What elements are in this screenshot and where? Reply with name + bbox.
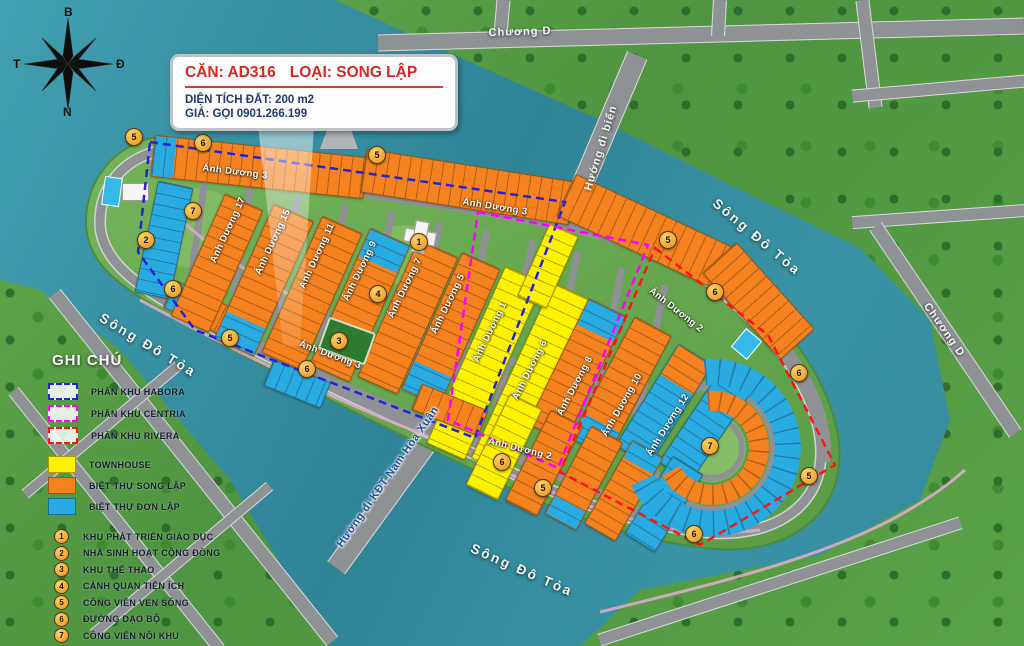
legend-amenity-7: 7 CÔNG VIÊN NỘI KHU	[30, 628, 280, 643]
legend-item-townhouse: TOWNHOUSE	[30, 456, 280, 473]
legend-amenity-2: 2 NHÀ SINH HOẠT CỘNG ĐỒNG	[30, 546, 280, 561]
amenity-marker: 1	[410, 233, 428, 251]
legend-amenity-6: 6 ĐƯỜNG DẠO BỘ	[30, 612, 280, 627]
legend-panel: GHI CHÚ PHÂN KHU HABORA PHÂN KHU CENTRIA…	[30, 352, 280, 645]
compass-rose: B N T Đ	[12, 4, 124, 116]
legend-label: KHU THỂ THAO	[83, 565, 155, 575]
compass-west-label: T	[13, 57, 21, 71]
habora-swatch	[48, 383, 78, 400]
popup-title: CĂN: AD316LOẠI: SONG LẬP	[185, 64, 443, 82]
amenity-number: 1	[54, 529, 69, 544]
amenity-marker: 6	[790, 364, 808, 382]
amenity-marker: 5	[125, 128, 143, 146]
legend-label: CÔNG VIÊN VEN SÔNG	[83, 598, 189, 608]
legend-label: BIỆT THỰ SONG LẬP	[89, 481, 186, 491]
legend-amenity-4: 4 CẢNH QUAN TIỆN ÍCH	[30, 579, 280, 594]
legend-label: PHÂN KHU RIVERA	[91, 431, 180, 441]
legend-label: KHU PHÁT TRIỂN GIÁO DỤC	[83, 532, 213, 542]
legend-label: NHÀ SINH HOẠT CỘNG ĐỒNG	[83, 548, 220, 558]
unit-info-popup[interactable]: CĂN: AD316LOẠI: SONG LẬP DIỆN TÍCH ĐẤT: …	[170, 54, 458, 131]
amenity-marker: 6	[493, 453, 511, 471]
compass-south-label: N	[63, 105, 72, 116]
amenity-marker: 6	[298, 360, 316, 378]
legend-label: PHÂN KHU CENTRIA	[91, 409, 186, 419]
amenity-marker: 5	[221, 329, 239, 347]
zone-centria-outline	[448, 212, 648, 468]
don-lap-swatch	[48, 498, 76, 515]
amenity-marker: 5	[800, 467, 818, 485]
legend-amenity-3: 3 KHU THỂ THAO	[30, 562, 280, 577]
amenity-marker: 6	[194, 134, 212, 152]
centria-swatch	[48, 405, 78, 422]
legend-item-song-lap: BIỆT THỰ SONG LẬP	[30, 477, 280, 494]
legend-item-rivera: PHÂN KHU RIVERA	[30, 427, 280, 444]
amenity-marker: 5	[659, 231, 677, 249]
legend-amenity-5: 5 CÔNG VIÊN VEN SÔNG	[30, 595, 280, 610]
compass-north-label: B	[64, 5, 73, 19]
amenity-number: 6	[54, 612, 69, 627]
popup-divider	[185, 86, 443, 88]
amenity-marker: 6	[164, 280, 182, 298]
song-lap-swatch	[48, 477, 76, 494]
amenity-number: 2	[54, 546, 69, 561]
popup-area-line: DIỆN TÍCH ĐẤT: 200 m2	[185, 94, 443, 106]
rivera-swatch	[48, 427, 78, 444]
legend-label: BIỆT THỰ ĐƠN LẬP	[89, 502, 180, 512]
amenity-marker: 6	[706, 283, 724, 301]
amenity-marker: 5	[534, 479, 552, 497]
legend-amenity-1: 1 KHU PHÁT TRIỂN GIÁO DỤC	[30, 529, 280, 544]
amenity-number: 4	[54, 579, 69, 594]
legend-label: CÔNG VIÊN NỘI KHU	[83, 631, 179, 641]
legend-label: CẢNH QUAN TIỆN ÍCH	[83, 581, 184, 591]
legend-item-don-lap: BIỆT THỰ ĐƠN LẬP	[30, 498, 280, 515]
master-plan-map: Ánh Dương 3 Ánh Dương 3 Ánh Dương 3 Ánh …	[0, 0, 1024, 646]
amenity-marker: 7	[701, 437, 719, 455]
popup-unit-type: LOẠI: SONG LẬP	[290, 64, 417, 81]
amenity-number: 5	[54, 595, 69, 610]
amenity-marker: 2	[137, 231, 155, 249]
amenity-marker: 5	[368, 146, 386, 164]
popup-price-line: GIÁ: GỌI 0901.266.199	[185, 108, 443, 120]
amenity-number: 7	[54, 628, 69, 643]
amenity-marker: 4	[369, 285, 387, 303]
amenity-number: 3	[54, 562, 69, 577]
legend-label: TOWNHOUSE	[89, 460, 151, 470]
amenity-marker: 7	[184, 202, 202, 220]
legend-item-centria: PHÂN KHU CENTRIA	[30, 405, 280, 422]
townhouse-swatch	[48, 456, 76, 473]
legend-label: PHÂN KHU HABORA	[91, 387, 185, 397]
compass-east-label: Đ	[116, 57, 124, 71]
road-label-chuong-d: Chương D	[488, 25, 551, 39]
amenity-marker: 6	[685, 525, 703, 543]
legend-title: GHI CHÚ	[52, 352, 280, 369]
popup-unit-code: CĂN: AD316	[185, 64, 276, 81]
amenity-marker: 3	[330, 332, 348, 350]
legend-label: ĐƯỜNG DẠO BỘ	[83, 614, 160, 624]
legend-item-habora: PHÂN KHU HABORA	[30, 383, 280, 400]
